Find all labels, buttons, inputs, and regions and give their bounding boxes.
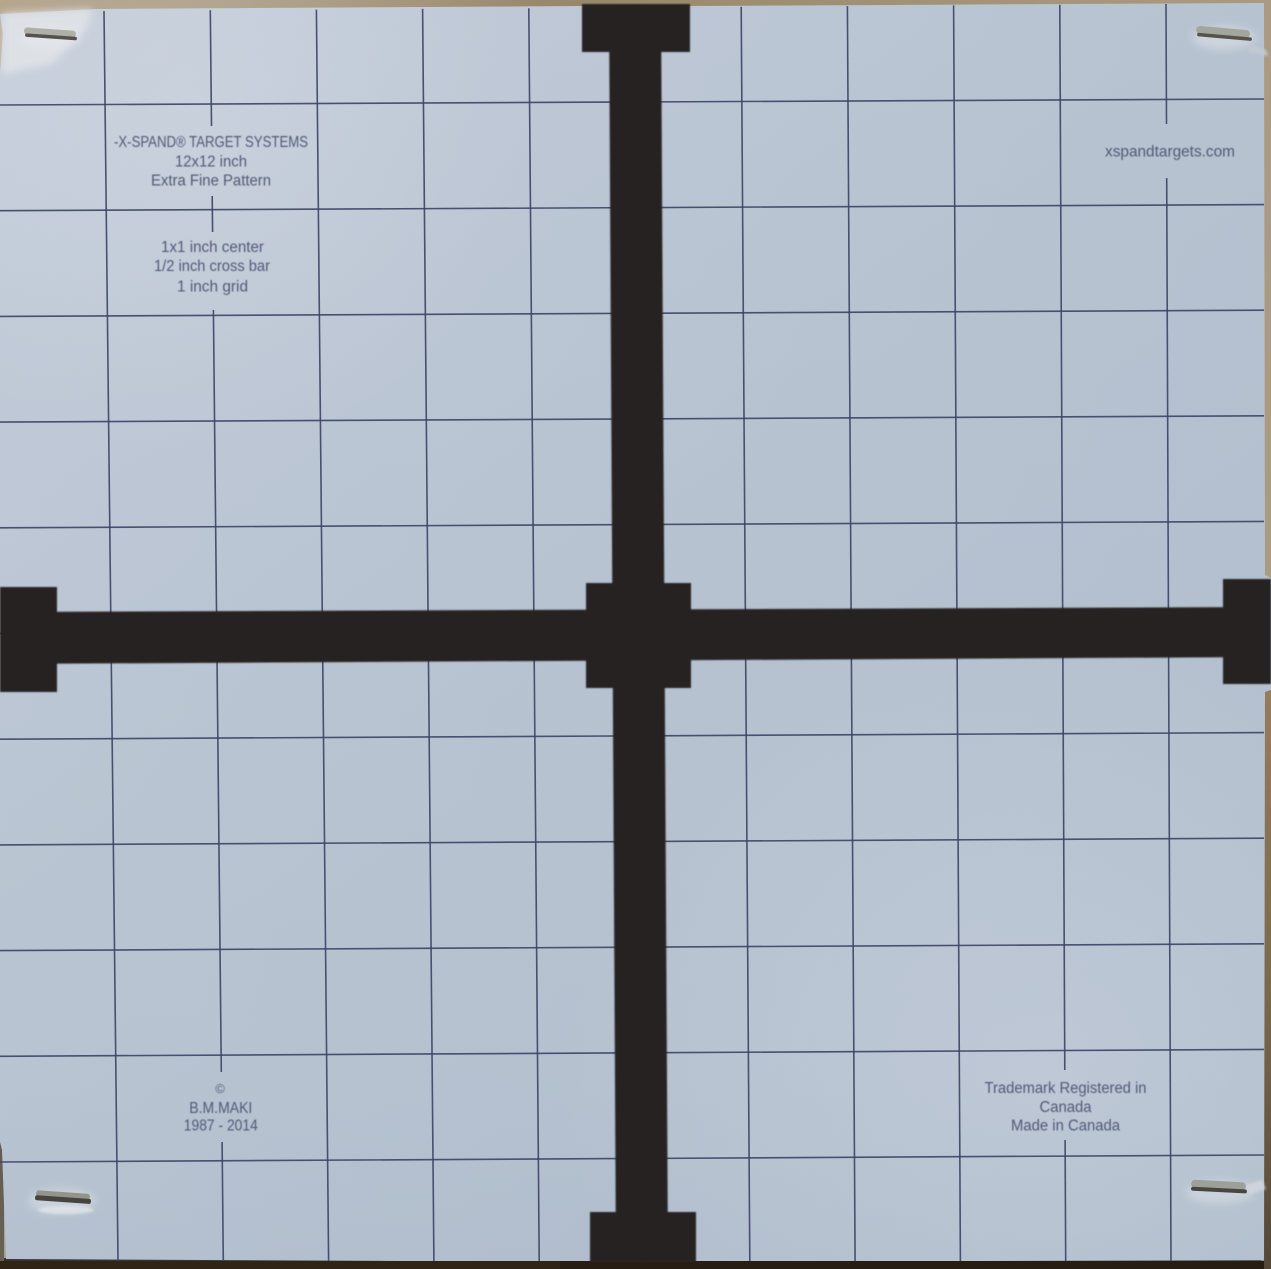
svg-text:©: © xyxy=(215,1081,225,1096)
svg-text:Trademark Registered in: Trademark Registered in xyxy=(985,1080,1147,1097)
svg-text:12x12 inch: 12x12 inch xyxy=(175,154,247,171)
svg-text:B.M.MAKI: B.M.MAKI xyxy=(189,1100,252,1117)
svg-text:-X-SPAND® TARGET SYSTEMS: -X-SPAND® TARGET SYSTEMS xyxy=(114,134,308,151)
svg-text:1987 - 2014: 1987 - 2014 xyxy=(184,1118,258,1135)
svg-text:xspandtargets.com: xspandtargets.com xyxy=(1105,144,1235,161)
svg-text:1 inch grid: 1 inch grid xyxy=(177,279,248,296)
svg-text:1/2 inch cross bar: 1/2 inch cross bar xyxy=(154,258,270,275)
svg-text:1x1 inch center: 1x1 inch center xyxy=(161,239,264,256)
svg-text:Extra Fine Pattern: Extra Fine Pattern xyxy=(151,173,271,190)
svg-text:Canada: Canada xyxy=(1040,1099,1092,1116)
svg-text:Made in Canada: Made in Canada xyxy=(1011,1118,1120,1135)
